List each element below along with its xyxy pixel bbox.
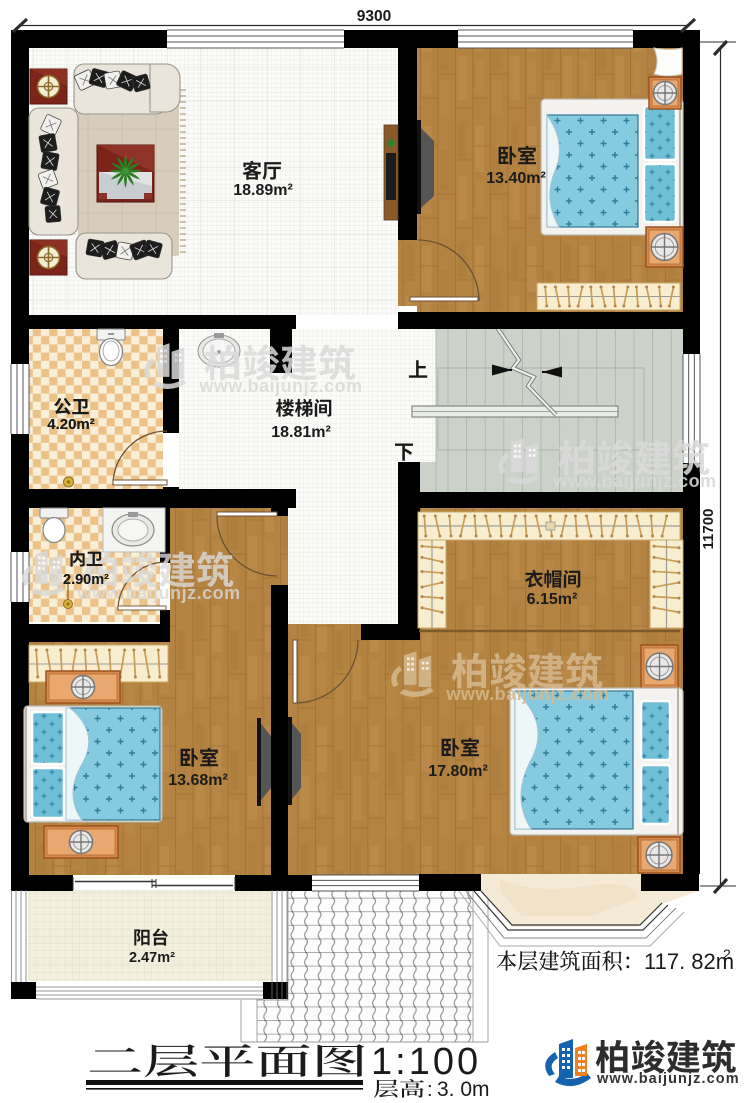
- svg-text:9300: 9300: [357, 8, 391, 25]
- svg-text:1:100: 1:100: [371, 1041, 481, 1083]
- svg-text:17.80m²: 17.80m²: [428, 763, 488, 780]
- svg-text:6.15m²: 6.15m²: [527, 591, 578, 608]
- svg-text:2.47m²: 2.47m²: [129, 950, 175, 966]
- svg-text:www.baijunjz.com: www.baijunjz.com: [445, 684, 609, 704]
- svg-text:www.baijunjz.com: www.baijunjz.com: [552, 471, 716, 491]
- svg-text:117. 82m: 117. 82m: [644, 949, 734, 974]
- svg-text:www.baijunjz.com: www.baijunjz.com: [198, 376, 362, 396]
- svg-text:3. 0m: 3. 0m: [437, 1078, 490, 1101]
- svg-text:11700: 11700: [700, 509, 717, 550]
- svg-text:4.20m²: 4.20m²: [47, 416, 95, 433]
- svg-text::: :: [427, 1079, 433, 1101]
- svg-text:18.81m²: 18.81m²: [271, 424, 331, 441]
- svg-text:13.68m²: 13.68m²: [168, 772, 228, 789]
- svg-text:2.90m²: 2.90m²: [63, 572, 109, 588]
- svg-text:www.baijunjz.com: www.baijunjz.com: [596, 1071, 740, 1087]
- svg-text:13.40m²: 13.40m²: [486, 170, 546, 187]
- svg-text:18.89m²: 18.89m²: [233, 182, 293, 199]
- svg-text:2: 2: [723, 946, 731, 962]
